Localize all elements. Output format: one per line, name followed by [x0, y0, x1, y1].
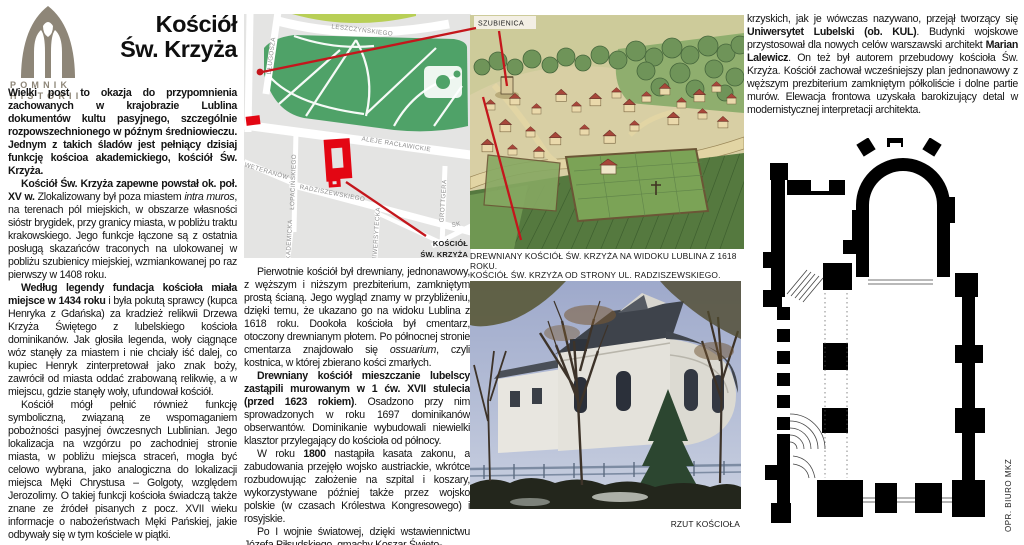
- floor-plan-details: [787, 270, 952, 502]
- paragraph: Kościół mógł pełnić również funkcję symb…: [8, 399, 237, 542]
- paragraph: Po I wojnie światowej, dzięki wstawienni…: [244, 526, 470, 545]
- paragraph: Według legendy fundacja kościoła miała m…: [8, 282, 237, 399]
- gothic-arch-icon: [10, 6, 86, 80]
- floor-plan-walls: [763, 138, 985, 523]
- document-page: POMNIK HISTORII Kościół Św. Krzyża Wielk…: [0, 0, 1024, 545]
- paragraph: W roku 1800 nastąpiła kasata zakonu, a z…: [244, 448, 470, 526]
- paragraph: Kościół Św. Krzyża zapewne powstał ok. p…: [8, 178, 237, 282]
- map-red-building: [246, 115, 261, 126]
- middle-column: Pierwotnie kościół był drewniany, jednon…: [244, 266, 470, 545]
- paragraph: Drewniany kościół mieszczanie lubelscy z…: [244, 370, 470, 448]
- szubienica-dot: [257, 69, 264, 76]
- paragraph: krzyskich, jak je wówczas nazywano, prze…: [747, 13, 1018, 117]
- historic-view-image: SZUBIENICA: [470, 15, 744, 249]
- right-column: krzyskich, jak je wówczas nazywano, prze…: [747, 13, 1018, 117]
- church-photo-image: [470, 281, 741, 509]
- caption-painting: DREWNIANY KOŚCIÓŁ ŚW. KRZYŻA NA WIDOKU L…: [470, 251, 744, 271]
- map-label-church-line1: KOŚCIÓŁ: [433, 239, 468, 248]
- paragraph: Pierwotnie kościół był drewniany, jednon…: [244, 266, 470, 370]
- paragraph: Wielki post to okazja do przypomnienia z…: [8, 87, 237, 178]
- floor-plan-axis-lines: [825, 293, 847, 478]
- left-column: Wielki post to okazja do przypomnienia z…: [8, 87, 237, 542]
- floor-plan-image: [763, 138, 985, 528]
- page-title-line2: Św. Krzyża: [100, 37, 237, 62]
- page-title: Kościół Św. Krzyża: [100, 12, 237, 62]
- szubienica-label: SZUBIENICA: [478, 21, 524, 28]
- location-map: LESZCZYŃSKIEGO DŁUGOSZA ALEJE RACŁAWICKI…: [244, 14, 471, 258]
- caption-floor-plan: RZUT KOŚCIOŁA: [560, 519, 740, 529]
- credit-vertical: OPR. BIURO MKZ: [1004, 452, 1013, 532]
- caption-photo: KOŚCIÓŁ ŚW. KRZYŻA OD STRONY UL. RADZISZ…: [470, 270, 744, 280]
- map-label-church-line2: ŚW. KRZYŻA: [420, 250, 468, 258]
- churchyard-enclosure: [566, 149, 708, 221]
- page-title-line1: Kościół: [100, 12, 237, 37]
